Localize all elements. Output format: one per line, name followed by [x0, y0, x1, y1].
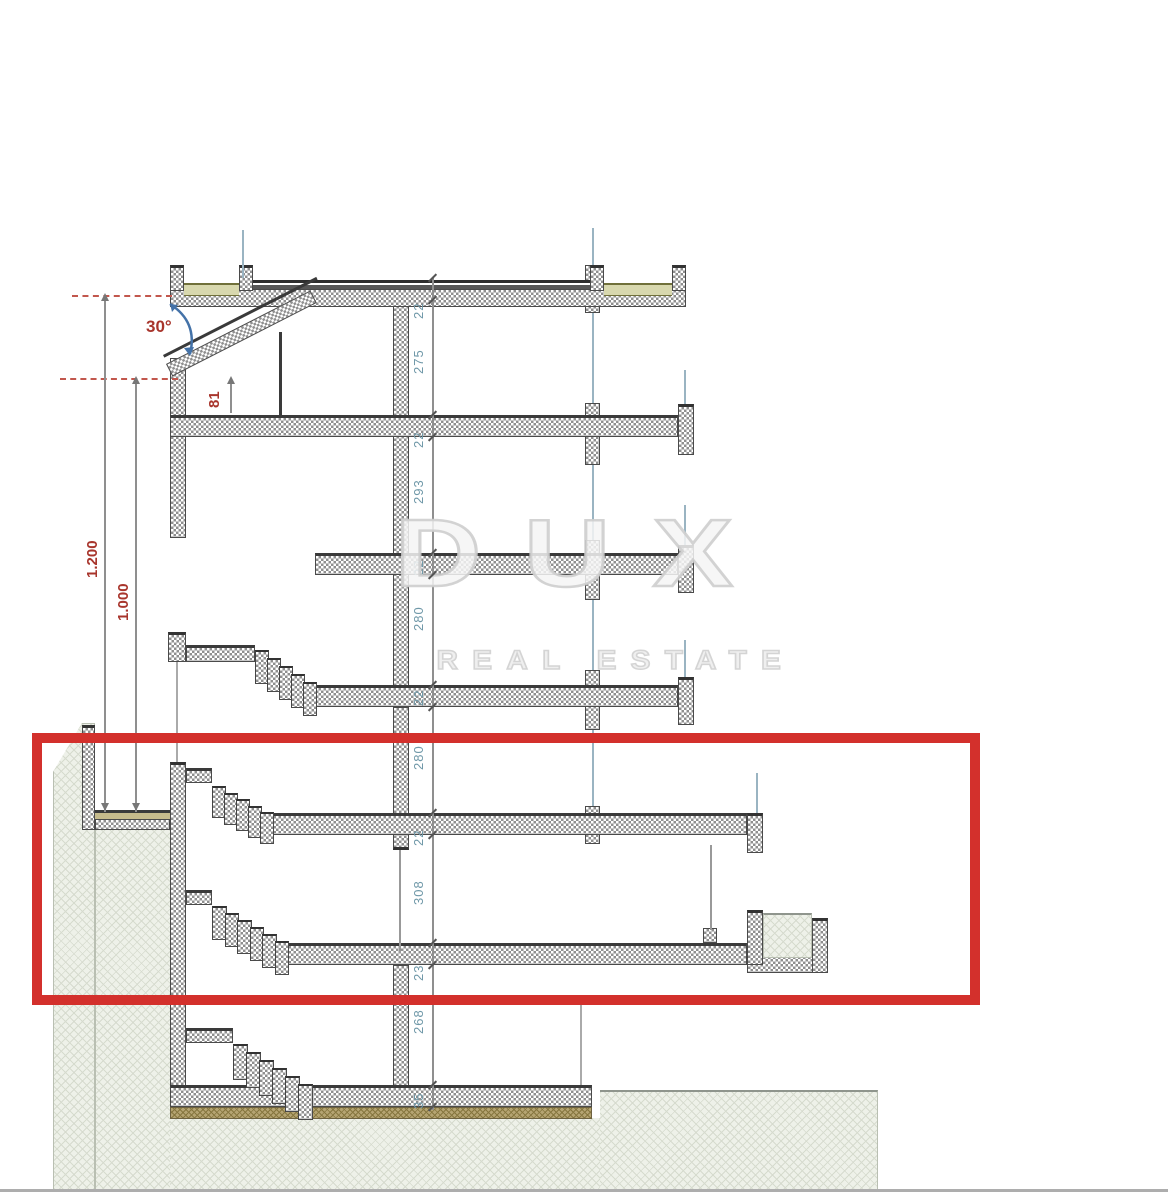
dim-label: 275: [411, 334, 429, 390]
knee-height-label: 81: [206, 380, 226, 420]
basement-wall-line: [580, 1005, 582, 1085]
watermark-subtitle: REAL ESTATE: [437, 645, 734, 676]
roof-green-strip: [604, 283, 672, 296]
ground-baseline: [0, 1189, 1168, 1192]
balcony-edge: [678, 677, 694, 725]
level-label-1000: 1.000: [115, 570, 135, 634]
glazing-line: [592, 313, 594, 403]
watermark-title: DUX: [348, 502, 823, 606]
terrain-right-block: [600, 1090, 878, 1190]
dim-arrow: [227, 376, 235, 384]
roof-parapet: [590, 265, 604, 291]
dim-arrow: [132, 376, 140, 384]
foundation-slab: [170, 1085, 592, 1107]
dim-label: 22: [411, 670, 429, 726]
stair-landing: [186, 645, 255, 662]
dim-arrow: [101, 293, 109, 301]
stair-curb: [168, 632, 186, 662]
roof-parapet: [672, 265, 686, 291]
knee-wall-line: [279, 332, 282, 415]
roof-green-strip: [184, 283, 239, 296]
level-dashed-line-lower: [60, 378, 178, 380]
dim-line-81: [230, 379, 232, 413]
gravel-layer: [170, 1107, 592, 1119]
angle-arc-arrow: [156, 296, 208, 362]
dim-label: 22: [411, 412, 429, 468]
roof-parapet: [170, 265, 184, 291]
balcony-edge: [678, 404, 694, 455]
axis-line: [592, 228, 594, 265]
stair-landing: [186, 1028, 233, 1043]
highlight-rectangle: [32, 733, 980, 1005]
dim-label: 22: [411, 283, 429, 339]
stair-step: [298, 1084, 313, 1120]
axis-line: [242, 230, 244, 278]
stair-step: [303, 682, 317, 716]
floor-slab-4: [315, 685, 678, 707]
railing-post: [684, 370, 686, 404]
left-wall-upper: [170, 358, 186, 538]
section-drawing: 22 275 22 293 22 280 22 280 22 308 23 26…: [0, 0, 1168, 1200]
dim-label: 35: [411, 1073, 429, 1129]
level-label-1200: 1.200: [84, 527, 104, 591]
